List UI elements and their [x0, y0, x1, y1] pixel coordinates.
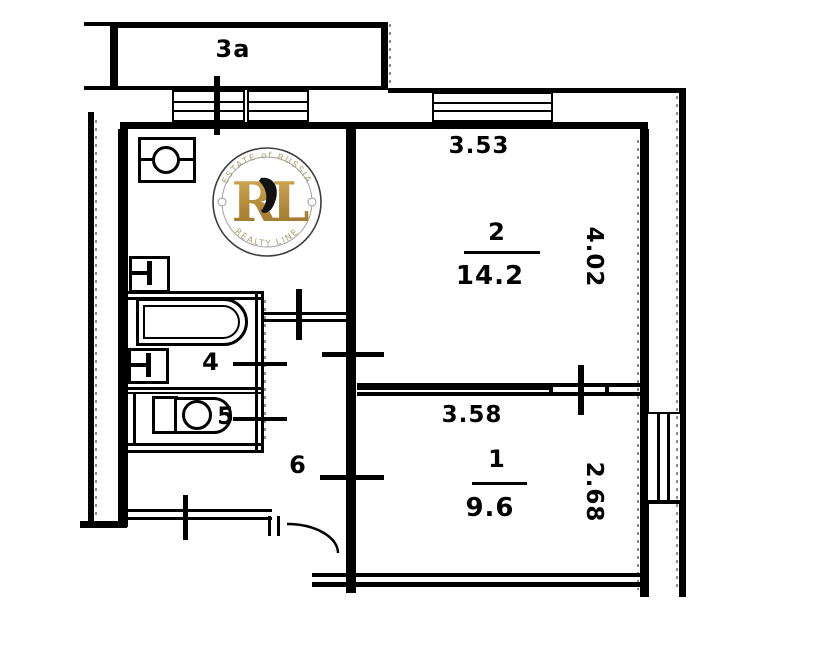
floor-plan: 3a: [0, 0, 837, 650]
vent-shaft-line: [657, 414, 660, 500]
room1-bottom-wall: [312, 582, 642, 587]
apartment-right-wall: [640, 129, 649, 597]
room1-number: 1: [488, 445, 506, 473]
door-tick-room2: [322, 352, 384, 357]
wall-hatch: [95, 120, 97, 520]
door-tick-kitchen: [296, 289, 302, 340]
room2-number: 2: [488, 218, 506, 246]
outer-right-wall: [679, 93, 686, 597]
room1-dim-side: 2.68: [581, 462, 607, 523]
bathtub-icon: [143, 305, 240, 339]
room4-number: 4: [202, 348, 220, 376]
door-tick-bathroom: [233, 362, 287, 366]
kitchen-left-wall: [118, 129, 128, 527]
room2-area: 14.2: [456, 261, 524, 291]
wall-stub-top-left: [84, 22, 112, 26]
room2-underline: [464, 251, 540, 254]
window-icon: [247, 90, 309, 122]
bath-bottom-wall: [126, 443, 263, 446]
entry-door-arc: [280, 515, 350, 560]
room1-area: 9.6: [465, 493, 514, 523]
kitchen-hall-wall: [263, 319, 355, 322]
balcony-right-wall: [381, 22, 388, 88]
rooms-divider-wall-thick: [357, 383, 553, 390]
main-top-wall: [120, 122, 648, 129]
door-tick-wc: [233, 417, 287, 421]
divider-joint: [549, 383, 553, 396]
balcony-left-wall: [110, 22, 118, 88]
vent-shaft-line: [667, 414, 670, 500]
hall-bottom-wall: [126, 509, 272, 512]
room1-dim-top: 3.58: [442, 402, 503, 428]
stove-icon: [147, 261, 152, 285]
divider-joint: [605, 383, 609, 396]
bath-right-wall: [255, 291, 258, 453]
washbasin-icon: [146, 353, 151, 377]
door-tick-room1: [320, 475, 384, 480]
room2-dim-top: 3.53: [449, 133, 510, 159]
window-icon: [172, 90, 245, 122]
wall-hatch: [264, 300, 266, 440]
logo-side-dot: [218, 198, 226, 206]
bath-wc-divider-wall: [126, 392, 263, 394]
door-jamb: [268, 516, 271, 536]
rooms-divider-wall: [357, 392, 642, 396]
wall-hatch: [676, 96, 678, 591]
balcony-top-wall: [110, 22, 388, 28]
logo-side-dot: [308, 198, 316, 206]
bath-bottom-wall: [126, 450, 263, 453]
room6-number: 6: [289, 451, 307, 479]
wall-hatch: [389, 24, 391, 86]
window-icon: [432, 92, 553, 122]
room1-bottom-wall: [312, 573, 642, 577]
balcony-label: 3a: [216, 35, 251, 63]
door-tick-divider: [578, 365, 584, 415]
kitchen-hall-wall: [263, 312, 355, 315]
outer-left-wall: [88, 112, 94, 527]
wc-inner-wall: [133, 394, 136, 444]
realty-line-logo: ESTATE of RUSSIA REALTY LINE RL: [197, 132, 337, 272]
kitchen-sink-icon: [152, 146, 180, 174]
room1-underline: [472, 482, 527, 485]
outer-left-bottom-stub: [80, 521, 127, 528]
bath-wc-divider-wall: [126, 387, 263, 390]
room5-number: 5: [217, 402, 235, 430]
wall-hatch: [637, 140, 639, 590]
room2-dim-side: 4.02: [581, 227, 607, 288]
hall-bottom-wall: [126, 517, 272, 520]
wall-tick: [183, 495, 188, 540]
toilet-icon: [182, 400, 212, 430]
